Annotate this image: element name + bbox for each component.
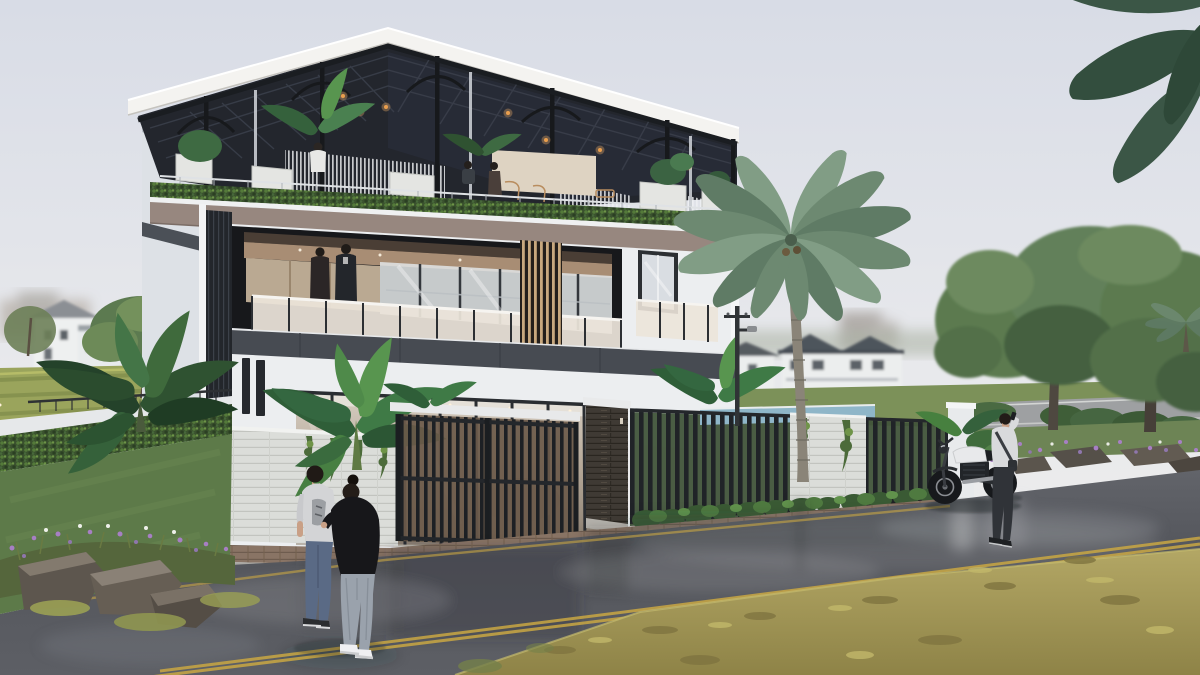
- stone-pillar: [583, 397, 631, 534]
- wood-slat-screen: [520, 240, 562, 354]
- street-lamp: [747, 326, 757, 332]
- scene-canvas: [0, 0, 1200, 675]
- driveway-gate: [390, 402, 580, 547]
- right-wing-railing: [636, 300, 718, 342]
- archviz-scene: [0, 0, 1200, 675]
